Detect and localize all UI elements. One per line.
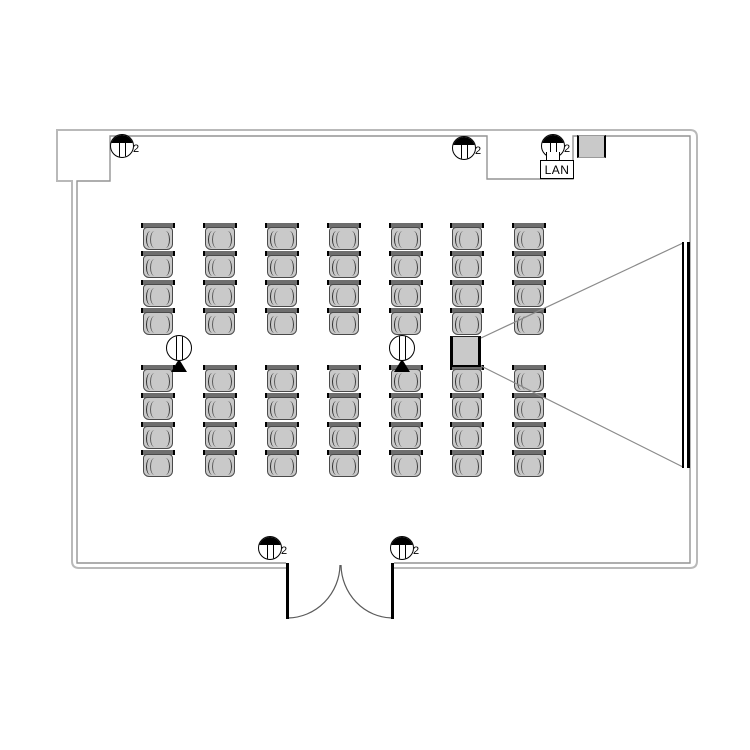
outlet-hatch bbox=[405, 336, 406, 360]
outlet-wall-side-fill bbox=[111, 135, 133, 143]
outlet-hatch bbox=[125, 135, 126, 157]
outlet-hatch bbox=[405, 537, 406, 559]
outlet-wall-side-fill bbox=[391, 537, 413, 545]
outlet-hatch bbox=[399, 537, 400, 559]
symbols-layer: 22222 bbox=[0, 0, 750, 750]
outlet-count-label: 2 bbox=[475, 146, 481, 157]
wall-outlet-symbol: 2 bbox=[452, 136, 476, 160]
outlet-hatch bbox=[267, 537, 268, 559]
outlet-count-label: 2 bbox=[133, 144, 139, 155]
lan-outlet-box: LAN bbox=[540, 160, 574, 179]
outlet-circle bbox=[390, 536, 414, 560]
wall-outlet-symbol: 2 bbox=[110, 134, 134, 158]
outlet-circle bbox=[389, 335, 415, 361]
outlet-count-label: 2 bbox=[281, 546, 287, 557]
outlet-count-label: 2 bbox=[413, 546, 419, 557]
equipment-box bbox=[577, 135, 606, 158]
wall-outlet-symbol: 2 bbox=[258, 536, 282, 560]
floor-outlet-symbol bbox=[166, 335, 192, 375]
outlet-hatch bbox=[176, 336, 177, 360]
floor-plan-canvas: 22222 LAN bbox=[0, 0, 750, 750]
outlet-hatch bbox=[119, 135, 120, 157]
outlet-circle bbox=[110, 134, 134, 158]
outlet-wall-side-fill bbox=[259, 537, 281, 545]
outlet-hatch bbox=[182, 336, 183, 360]
outlet-hatch bbox=[467, 137, 468, 159]
outlet-hatch bbox=[399, 336, 400, 360]
projection-screen bbox=[682, 242, 690, 468]
outlet-hatch bbox=[461, 137, 462, 159]
outlet-hatch bbox=[273, 537, 274, 559]
outlet-count-label: 2 bbox=[564, 144, 570, 155]
outlet-circle bbox=[166, 335, 192, 361]
outlet-wall-side-fill bbox=[453, 137, 475, 145]
wall-outlet-symbol: 2 bbox=[390, 536, 414, 560]
projector bbox=[450, 336, 481, 367]
outlet-wall-side-fill bbox=[542, 135, 564, 143]
lan-label: LAN bbox=[545, 163, 570, 177]
outlet-circle bbox=[452, 136, 476, 160]
floor-outlet-symbol bbox=[389, 335, 415, 375]
outlet-circle bbox=[258, 536, 282, 560]
